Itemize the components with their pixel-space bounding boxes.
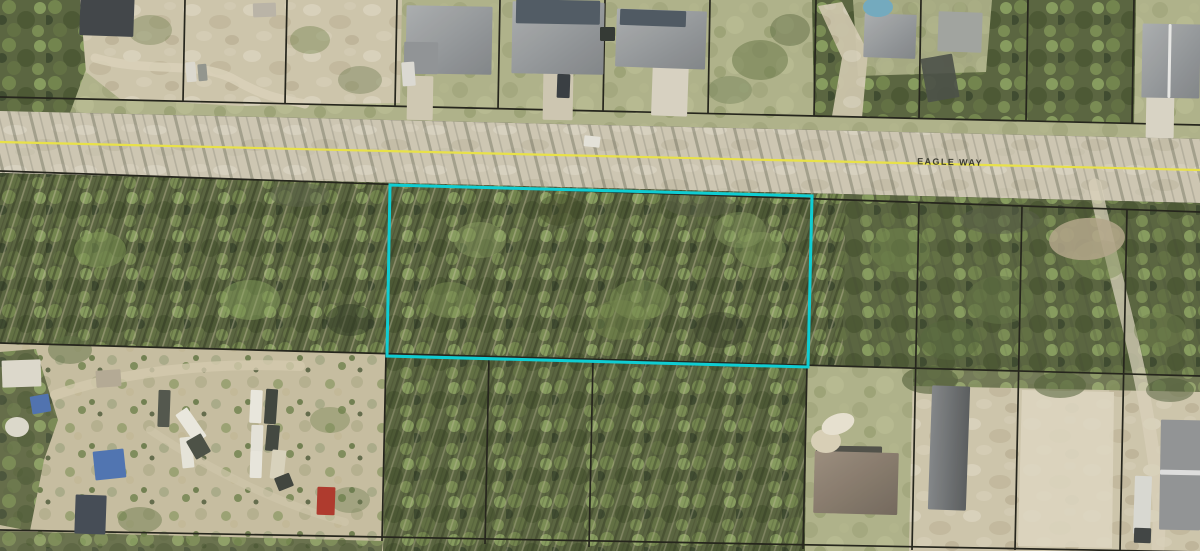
- road-label: EAGLE WAY: [917, 156, 983, 167]
- aerial-map-canvas[interactable]: EAGLE WAY: [0, 0, 1200, 551]
- photo-wash: [0, 0, 1200, 551]
- aerial-imagery: EAGLE WAY: [0, 0, 1200, 551]
